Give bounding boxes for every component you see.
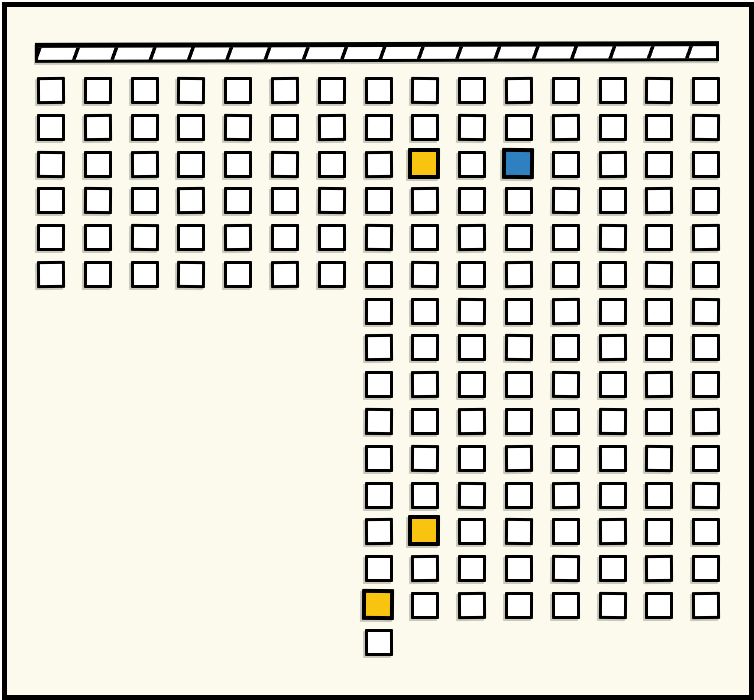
grid-cell[interactable] <box>552 151 580 178</box>
grid-cell[interactable] <box>645 445 673 472</box>
grid-cell[interactable] <box>599 555 627 582</box>
grid-cell[interactable] <box>692 261 720 288</box>
grid-cell[interactable] <box>505 334 533 361</box>
grid-cell[interactable] <box>599 187 627 214</box>
grid-cell[interactable] <box>84 261 112 288</box>
grid-cell[interactable] <box>692 114 720 141</box>
grid-cell[interactable] <box>365 334 393 361</box>
grid-cell[interactable] <box>271 187 299 214</box>
grid-cell[interactable] <box>365 261 393 288</box>
hatched-board-bar <box>35 41 719 63</box>
grid-cell[interactable] <box>692 187 720 214</box>
grid-cell[interactable] <box>271 150 299 177</box>
grid-cell[interactable] <box>411 187 439 214</box>
grid-cell[interactable] <box>84 77 112 104</box>
grid-cell[interactable] <box>505 114 533 141</box>
grid-cell[interactable] <box>599 408 627 435</box>
grid-cell[interactable] <box>365 371 393 398</box>
grid-cell[interactable] <box>552 187 580 214</box>
grid-cell[interactable] <box>599 77 627 104</box>
grid-cell[interactable] <box>37 261 65 288</box>
grid-cell[interactable] <box>599 482 627 509</box>
grid-cell[interactable] <box>84 224 112 251</box>
grid-cell[interactable] <box>645 77 673 104</box>
grid-cell[interactable] <box>505 261 533 288</box>
grid-cell[interactable] <box>599 150 627 177</box>
grid-cell[interactable] <box>411 482 439 509</box>
grid-cell[interactable] <box>318 151 346 178</box>
grid-cell[interactable] <box>365 298 393 325</box>
grid-cell[interactable] <box>318 224 346 251</box>
grid-cell[interactable] <box>645 482 673 509</box>
grid-cell[interactable] <box>177 261 205 288</box>
grid-cell[interactable] <box>505 298 533 325</box>
grid-cell[interactable] <box>692 518 720 545</box>
grid-cell[interactable] <box>365 224 393 251</box>
grid-cell[interactable] <box>645 187 673 214</box>
grid-cell-blue[interactable] <box>502 147 534 178</box>
grid-cell[interactable] <box>411 224 439 251</box>
grid-cell[interactable] <box>458 187 486 214</box>
grid-cell[interactable] <box>692 77 720 104</box>
grid-cell[interactable] <box>177 224 205 251</box>
grid-cell[interactable] <box>224 224 252 251</box>
grid-cell[interactable] <box>411 77 439 104</box>
grid-cell[interactable] <box>318 187 346 214</box>
grid-cell[interactable] <box>271 224 299 251</box>
grid-cell[interactable] <box>177 114 205 141</box>
grid-cell[interactable] <box>552 445 580 472</box>
grid-cell[interactable] <box>599 445 627 472</box>
grid-cell[interactable] <box>37 114 65 141</box>
grid-cell[interactable] <box>411 114 439 141</box>
grid-cell[interactable] <box>37 77 65 104</box>
grid-cell[interactable] <box>552 224 580 251</box>
grid-cell[interactable] <box>505 592 533 619</box>
grid-cell[interactable] <box>84 114 112 141</box>
grid-cell[interactable] <box>505 408 533 435</box>
grid-cell[interactable] <box>505 445 533 472</box>
grid-cell[interactable] <box>505 518 533 545</box>
grid-cell[interactable] <box>692 371 720 398</box>
grid-cell[interactable] <box>599 114 627 141</box>
grid-cell[interactable] <box>458 518 486 545</box>
grid-cell[interactable] <box>365 555 393 582</box>
grid-cell[interactable] <box>131 261 159 288</box>
grid-cell[interactable] <box>645 298 673 325</box>
grid-cell[interactable] <box>458 555 486 582</box>
grid-cell[interactable] <box>552 518 580 545</box>
grid-cell[interactable] <box>458 408 486 435</box>
grid-cell[interactable] <box>458 151 486 178</box>
grid-cell[interactable] <box>37 187 65 214</box>
grid-cell[interactable] <box>505 555 533 582</box>
grid-cell[interactable] <box>692 151 720 178</box>
grid-cell[interactable] <box>365 77 393 104</box>
grid-cell[interactable] <box>692 445 720 472</box>
grid-cell[interactable] <box>131 224 159 251</box>
grid-cell[interactable] <box>599 224 627 251</box>
grid-cell[interactable] <box>224 187 252 214</box>
grid-cell[interactable] <box>131 150 159 177</box>
grid-cell-yellow[interactable] <box>408 147 440 178</box>
grid-cell[interactable] <box>224 114 252 141</box>
grid-cell[interactable] <box>458 592 486 619</box>
grid-cell[interactable] <box>645 518 673 545</box>
grid-cell[interactable] <box>271 77 299 104</box>
grid-cell[interactable] <box>411 555 439 582</box>
grid-cell[interactable] <box>645 555 673 582</box>
grid-cell[interactable] <box>318 77 346 104</box>
grid-cell[interactable] <box>411 334 439 361</box>
grid-cell[interactable] <box>177 187 205 214</box>
grid-cell[interactable] <box>645 261 673 288</box>
grid-cell[interactable] <box>411 445 439 472</box>
grid-cell[interactable] <box>365 445 393 472</box>
grid-cell[interactable] <box>224 151 252 178</box>
grid-cell[interactable] <box>365 408 393 435</box>
grid-cell[interactable] <box>552 334 580 361</box>
grid-cell[interactable] <box>365 187 393 214</box>
grid-cell[interactable] <box>552 481 580 508</box>
grid-cell[interactable] <box>505 77 533 104</box>
grid-cell[interactable] <box>599 261 627 288</box>
grid-cell[interactable] <box>692 298 720 325</box>
grid-cell[interactable] <box>458 445 486 472</box>
grid-cell[interactable] <box>552 77 580 104</box>
grid-cell[interactable] <box>552 114 580 141</box>
grid-cell[interactable] <box>645 371 673 398</box>
grid-cell[interactable] <box>692 592 720 619</box>
grid-cell[interactable] <box>224 261 252 288</box>
grid-cell[interactable] <box>411 408 439 435</box>
grid-cell[interactable] <box>177 151 205 178</box>
grid-cell[interactable] <box>365 518 393 545</box>
grid-cell[interactable] <box>224 77 252 104</box>
grid-cell[interactable] <box>599 592 627 619</box>
grid-cell[interactable] <box>645 592 673 619</box>
grid-cell[interactable] <box>271 114 299 141</box>
grid-cell[interactable] <box>692 224 720 251</box>
grid-cell[interactable] <box>318 114 346 141</box>
grid-cell[interactable] <box>411 261 439 288</box>
grid-cell[interactable] <box>458 371 486 398</box>
grid-cell[interactable] <box>458 481 486 508</box>
grid-cell[interactable] <box>365 114 393 141</box>
grid-cell[interactable] <box>458 224 486 251</box>
grid-cell[interactable] <box>552 298 580 325</box>
grid-cell[interactable] <box>552 261 580 288</box>
grid-cell[interactable] <box>552 592 580 619</box>
grid-cell[interactable] <box>692 555 720 582</box>
grid-cell[interactable] <box>318 261 346 288</box>
grid-cell[interactable] <box>458 334 486 361</box>
grid-cell[interactable] <box>645 408 673 435</box>
grid-cell[interactable] <box>131 77 159 104</box>
grid-cell[interactable] <box>552 555 580 582</box>
grid-cell[interactable] <box>552 371 580 398</box>
grid-cell[interactable] <box>411 298 439 325</box>
grid-cell[interactable] <box>505 224 533 251</box>
grid-cell[interactable] <box>177 77 205 104</box>
grid-cell[interactable] <box>37 224 65 251</box>
grid-cell[interactable] <box>692 408 720 435</box>
grid-cell[interactable] <box>505 371 533 398</box>
grid-cell[interactable] <box>458 298 486 325</box>
grid-cell[interactable] <box>505 187 533 214</box>
grid-cell-yellow[interactable] <box>361 589 393 620</box>
diagram-frame <box>2 2 754 700</box>
grid-cell[interactable] <box>645 334 673 361</box>
grid-cell[interactable] <box>552 408 580 435</box>
grid-cell[interactable] <box>692 334 720 361</box>
grid-cell[interactable] <box>131 114 159 141</box>
grid-cell[interactable] <box>271 261 299 288</box>
grid-cell[interactable] <box>458 261 486 288</box>
grid-cell[interactable] <box>599 371 627 398</box>
grid-cell[interactable] <box>365 629 393 656</box>
grid-cell[interactable] <box>411 371 439 398</box>
grid-cell[interactable] <box>37 150 65 177</box>
grid-cell[interactable] <box>84 151 112 178</box>
grid-cell[interactable] <box>599 298 627 325</box>
grid-cell[interactable] <box>411 592 439 619</box>
grid-cell[interactable] <box>365 482 393 509</box>
grid-cell[interactable] <box>365 150 393 177</box>
grid-cell[interactable] <box>131 187 159 214</box>
grid-cell[interactable] <box>505 482 533 509</box>
grid-cell-yellow[interactable] <box>408 515 440 546</box>
grid-cell[interactable] <box>84 187 112 214</box>
grid-cell[interactable] <box>645 151 673 178</box>
grid-cell[interactable] <box>458 114 486 141</box>
grid-cell[interactable] <box>458 77 486 104</box>
grid-cell[interactable] <box>645 224 673 251</box>
grid-cell[interactable] <box>599 334 627 361</box>
grid-cell[interactable] <box>692 481 720 508</box>
grid-cell[interactable] <box>599 518 627 545</box>
grid-cell[interactable] <box>645 114 673 141</box>
